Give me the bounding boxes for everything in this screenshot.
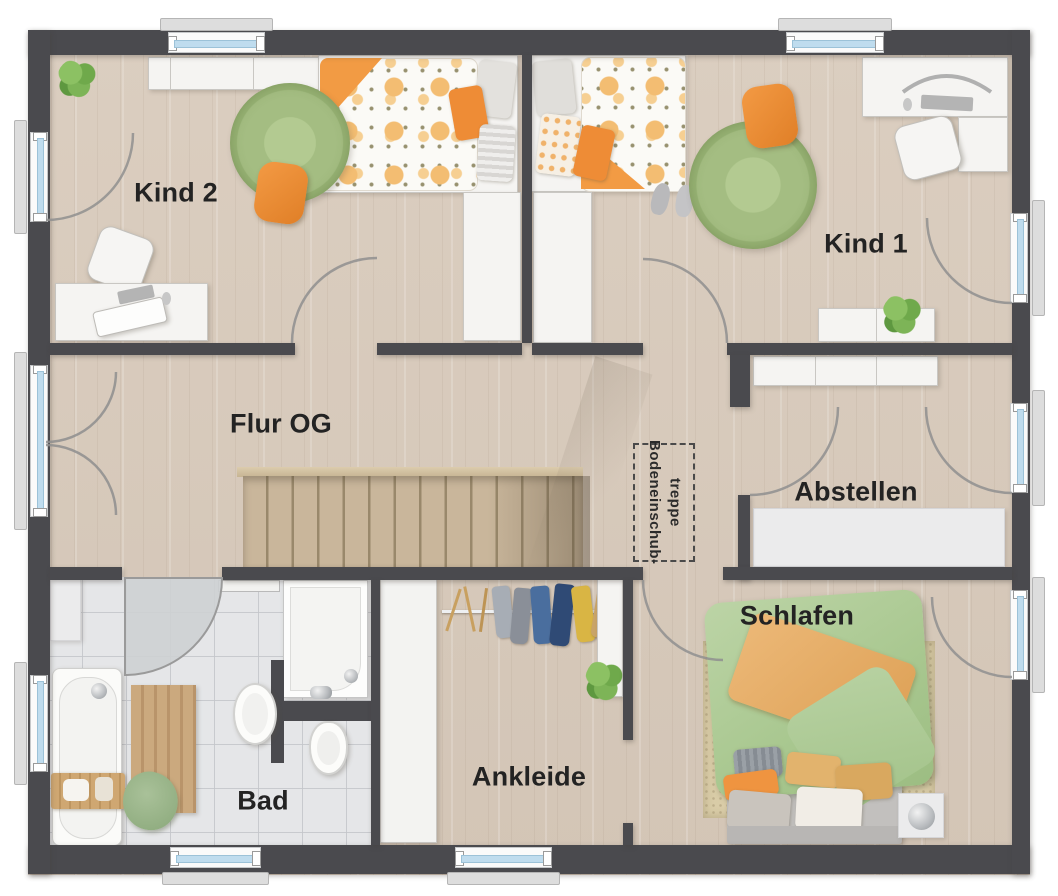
plant-kind2 [57, 58, 99, 100]
cabinet-bad [50, 578, 81, 641]
mouse-kind2 [162, 292, 171, 305]
wall-kids-divider [522, 55, 532, 343]
wall-kind2-bottom-left [50, 343, 295, 355]
shelf-abstellen [753, 508, 1005, 567]
window-right-schlafen [1010, 590, 1028, 680]
wall-mid-left [50, 567, 122, 580]
wall-abstellen-left-top [730, 355, 750, 407]
shutter-right-kind1 [1032, 200, 1045, 316]
towel-rail-bad [218, 580, 280, 592]
wall-kind1-bottom-right [727, 343, 1012, 355]
pillow-white-schlafen [795, 786, 863, 831]
monitor-kind2 [92, 296, 168, 338]
shutter-top-kind2 [160, 18, 273, 31]
toilet-bad [309, 721, 348, 775]
wall-mid-center [222, 567, 643, 580]
plant-ankleide [585, 658, 625, 704]
shutter-bottom-bad [162, 872, 269, 885]
keyboard-kind1 [921, 95, 974, 112]
wall-ankleide-schlafen-top [623, 580, 633, 740]
sideboard-abstellen [753, 356, 938, 386]
window-left-flur [30, 365, 48, 517]
desk-kind1 [862, 57, 1008, 117]
nightstand-schlafen [898, 793, 944, 838]
shutter-left-bad [14, 662, 27, 785]
bathtub-faucet [91, 683, 107, 699]
window-bottom-ankleide [455, 847, 552, 868]
bath-counter [274, 701, 371, 721]
bath-faucet [310, 686, 332, 699]
wall-ankleide-schlafen-bottom [623, 823, 633, 845]
wall-schlafen-top [723, 567, 1012, 580]
bed-kind1 [531, 55, 686, 192]
attic-hatch-box: Bodeneinschub- treppe [633, 443, 695, 562]
room-label-kind1: Kind 1 [824, 229, 908, 260]
desk-return-kind1 [958, 117, 1008, 172]
lamp-schlafen [908, 803, 935, 830]
attic-hatch-label: Bodeneinschub- treppe [644, 440, 685, 565]
wall-kind1-bottom-left [532, 343, 643, 355]
bathtub-caddy [51, 773, 125, 809]
room-label-flur-og: Flur OG [230, 409, 332, 440]
plant-kind1 [882, 293, 924, 337]
room-label-bad: Bad [237, 786, 289, 817]
attic-hatch-line1: Bodeneinschub- [644, 440, 664, 565]
attic-hatch-line2: treppe [664, 440, 684, 565]
window-top-kind1 [786, 32, 884, 53]
beanbag-kind2 [252, 160, 310, 226]
wall-kind2-bottom-right [377, 343, 522, 355]
washbasin-bad [233, 683, 277, 745]
window-left-bad [30, 675, 48, 772]
closet-kind2 [463, 192, 521, 341]
room-label-kind2: Kind 2 [134, 178, 218, 209]
shower-bad [283, 580, 368, 698]
shutter-left-flur [14, 352, 27, 530]
mouse-kind1 [903, 98, 912, 111]
room-label-schlafen: Schlafen [740, 601, 854, 632]
shutter-bottom-ankleide [447, 872, 560, 885]
room-label-ankleide: Ankleide [472, 762, 586, 793]
shower-drain [344, 669, 358, 683]
wardrobe-ankleide [380, 578, 437, 843]
footboard-schlafen [727, 826, 902, 844]
shutter-right-abstellen [1032, 390, 1045, 506]
window-left-kind2 [30, 132, 48, 222]
window-right-abstellen [1010, 403, 1028, 493]
window-top-kind2 [168, 32, 265, 53]
desk-kind2 [55, 283, 208, 341]
bathtub-bad [52, 668, 122, 846]
window-right-kind1 [1010, 213, 1028, 303]
pillow-striped-kind2 [476, 124, 516, 182]
bed-kind2 [318, 55, 518, 193]
closet-kind1 [533, 192, 592, 343]
room-label-abstellen: Abstellen [794, 477, 917, 508]
floor-plan: Bodeneinschub- treppe [0, 0, 1058, 896]
shutter-top-kind1 [778, 18, 892, 31]
wall-bad-ankleide [371, 580, 380, 845]
shutter-right-schlafen [1032, 577, 1045, 693]
beanbag-kind1 [740, 82, 800, 151]
pillow-gray-kind1 [531, 58, 577, 117]
pillow-tan1-schlafen [784, 751, 841, 788]
shutter-left-kind2 [14, 120, 27, 234]
window-bottom-bad [170, 847, 261, 868]
